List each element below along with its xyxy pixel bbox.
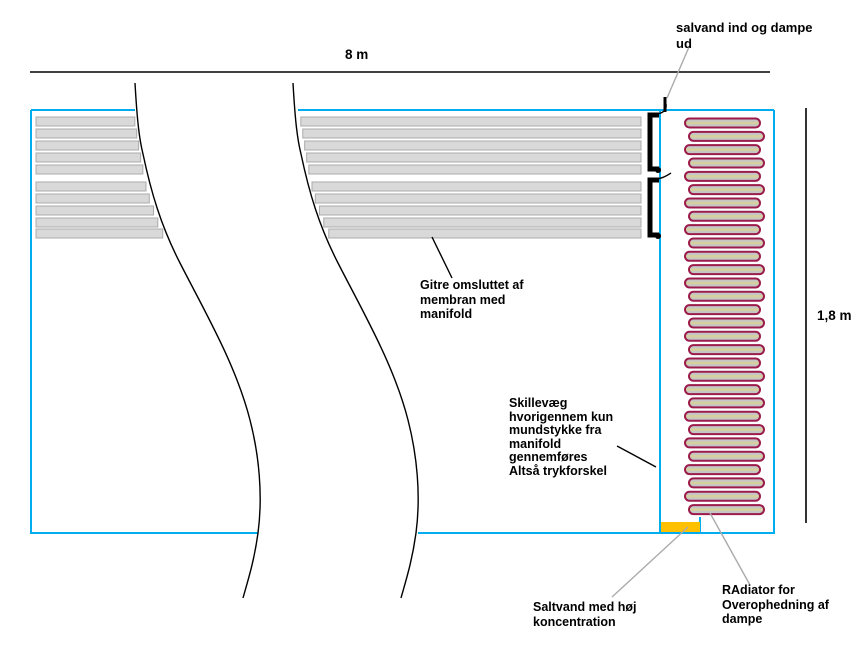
radiator-tube <box>689 398 764 407</box>
radiator-tube <box>685 465 760 474</box>
saltwater-pointer-line <box>612 527 688 597</box>
radiator-tube <box>689 292 764 301</box>
saltwater-zone <box>661 522 700 532</box>
radiator-pointer-line <box>710 513 750 585</box>
grid-bar <box>329 229 641 238</box>
radiator-tube <box>685 385 760 394</box>
grid-bar <box>301 117 641 126</box>
diagram-canvas: salvand ind og dampeud 8 m 1,8 m Gitre o… <box>0 0 863 668</box>
saltwater-pocket <box>661 522 700 532</box>
radiator-tube <box>689 318 764 327</box>
grid-bar <box>36 218 158 227</box>
grid-bar <box>309 165 641 174</box>
grid-bar <box>303 129 641 138</box>
radiator-tube <box>689 372 764 381</box>
grid-bar <box>320 206 641 215</box>
grid-bar <box>36 117 135 126</box>
grid-bar <box>36 206 154 215</box>
inlet-label: salvand ind og dampeud <box>676 20 813 52</box>
grid-bar <box>36 229 163 238</box>
radiator-tube <box>685 492 760 501</box>
radiator-tube <box>685 412 760 421</box>
partition-label: Skillevæghvorigennem kunmundstykke frama… <box>509 397 613 478</box>
bracket-tip <box>655 233 661 239</box>
break-curve-left <box>135 83 260 598</box>
saltwater-label: Saltvand med højkoncentration <box>533 600 637 629</box>
radiator-tube <box>685 438 760 447</box>
radiator-tube <box>685 198 760 207</box>
radiator-tube <box>689 425 764 434</box>
grids-pointer-line <box>432 237 452 278</box>
bracket-tip <box>655 167 661 173</box>
grid-bar <box>36 153 141 162</box>
radiator-tube <box>685 252 760 261</box>
radiator-tube <box>689 478 764 487</box>
radiator-tube <box>685 119 760 128</box>
width-dimension-label: 8 m <box>345 48 368 62</box>
grid-bar <box>307 153 641 162</box>
grid-bar <box>312 182 641 191</box>
radiator-tube <box>685 145 760 154</box>
grid-bar <box>305 141 641 150</box>
evaporator-diagram <box>0 0 863 668</box>
radiator-tube <box>689 505 764 514</box>
radiator-tube <box>685 172 760 181</box>
radiator-label: RAdiator forOverophedning afdampe <box>722 583 829 627</box>
grid-bar <box>36 194 149 203</box>
radiator-tube <box>685 332 760 341</box>
radiator-tube <box>689 345 764 354</box>
radiator-tube <box>689 452 764 461</box>
radiator-tube <box>689 132 764 141</box>
height-dimension-label: 1,8 m <box>817 309 852 323</box>
radiator-tube <box>685 278 760 287</box>
radiator-tube <box>689 265 764 274</box>
grid-bar <box>36 141 139 150</box>
grid-bar <box>36 165 143 174</box>
grid-bar <box>36 129 137 138</box>
manifold-bracket-top <box>650 115 659 169</box>
grids-label: Gitre omsluttet afmembran medmanifold <box>420 278 524 322</box>
partition-pointer-line <box>617 446 656 467</box>
manifold-bracket-bottom <box>650 180 659 235</box>
membrane-grid-bars <box>36 117 641 238</box>
radiator-tube <box>689 158 764 167</box>
radiator-tube <box>689 238 764 247</box>
radiator-tube <box>685 358 760 367</box>
grid-bar <box>36 182 146 191</box>
grid-bar <box>324 218 641 227</box>
grid-bar <box>315 194 641 203</box>
radiator-tube <box>689 185 764 194</box>
radiator-tube <box>685 225 760 234</box>
radiator-tube <box>689 212 764 221</box>
radiator-tubes <box>685 119 764 515</box>
radiator-tube <box>685 305 760 314</box>
